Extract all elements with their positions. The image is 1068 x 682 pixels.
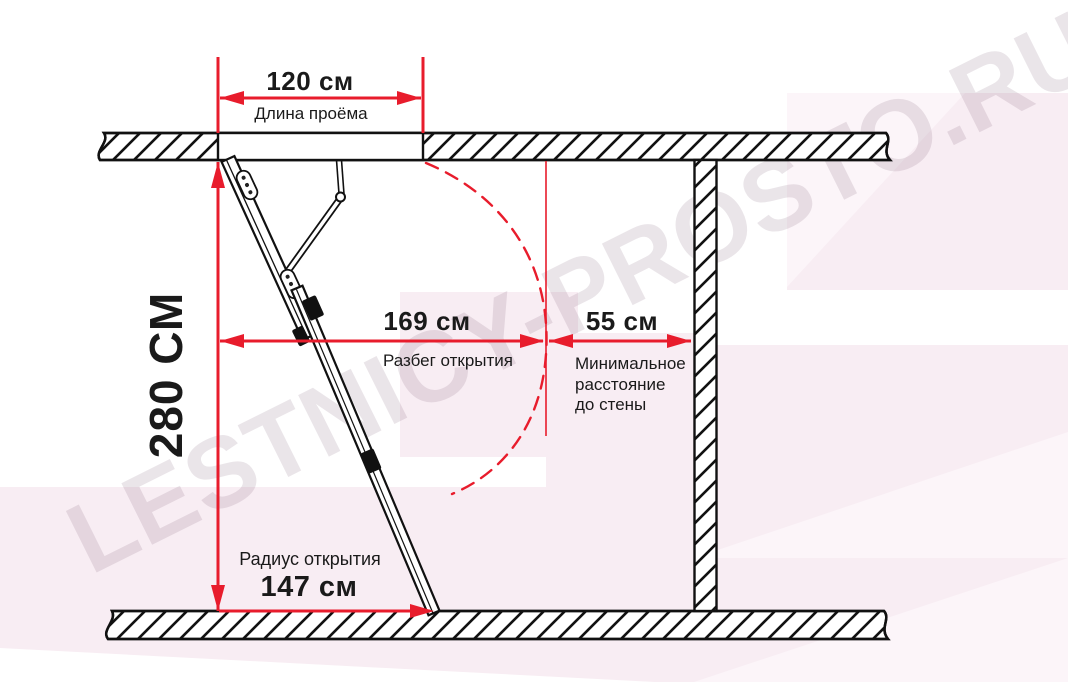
dimension-wall-gap-label: Минимальное расстояние до стены (575, 354, 686, 416)
dimension-radius-value: 147 см (260, 571, 357, 604)
wall-gap-label-line3: до стены (575, 395, 686, 416)
dimension-wall-gap-value: 55 см (586, 306, 658, 337)
arrowhead-right-icon (397, 91, 421, 105)
arrowhead-left-icon (220, 334, 244, 348)
arrowhead-right-icon (667, 334, 691, 348)
dimension-height-value: 280 СМ (139, 292, 193, 458)
arrowhead-right-icon (520, 334, 544, 348)
wall-gap-label-line1: Минимальное (575, 354, 686, 375)
ladder-upper-section (222, 156, 316, 347)
arrowhead-left-icon (220, 91, 244, 105)
attic-ladder (222, 156, 440, 615)
wall-gap-label-line2: расстояние (575, 375, 686, 396)
dimension-radius-label: Радиус открытия (239, 549, 381, 570)
arrowhead-down-icon (211, 585, 225, 611)
dimension-opening-label: Длина проёма (254, 104, 367, 124)
dimension-run-label: Разбег открытия (383, 351, 513, 371)
wall (695, 160, 717, 611)
arrowhead-left-icon (549, 334, 573, 348)
attic-ladder-dimensions-diagram: LESTNICY-PROSTO.RU (0, 0, 1068, 682)
dimension-run-value: 169 см (383, 306, 470, 337)
ceiling-slab (99, 133, 890, 160)
ceiling-opening (218, 133, 423, 160)
ladder-spring-arm (278, 160, 345, 277)
floor-slab (106, 611, 888, 639)
dimension-opening-value: 120 см (266, 66, 353, 97)
